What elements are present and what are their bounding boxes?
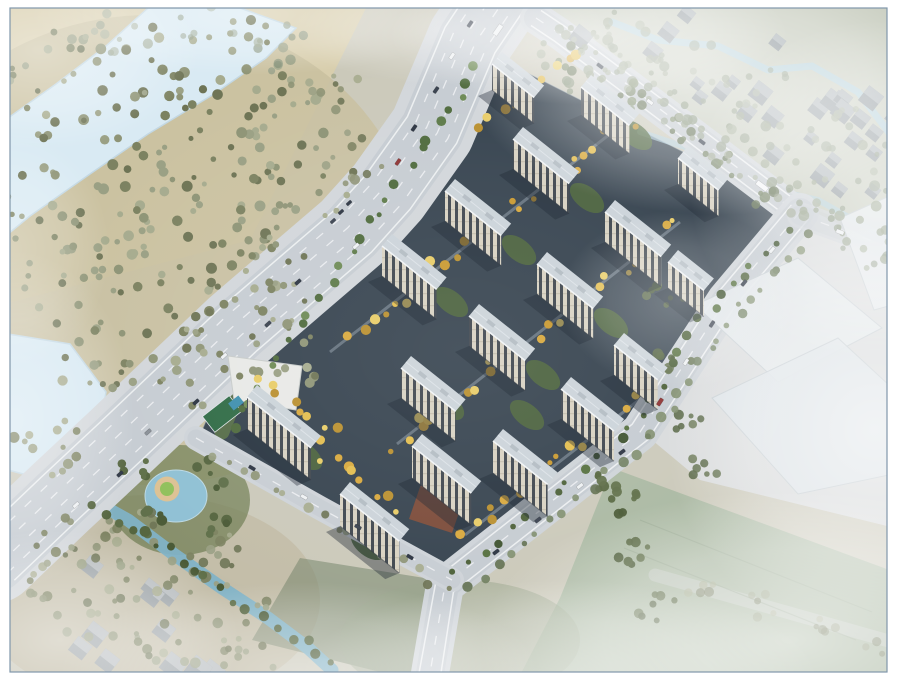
haze [0,0,903,685]
tree [212,89,223,100]
tree [199,85,207,93]
tree [215,75,225,85]
tree [107,159,118,170]
aerial-site-rendering [0,0,903,685]
rendering-page [0,0,903,685]
tree [132,142,141,151]
haze-patch [40,50,880,650]
tree [188,100,197,109]
tree [182,105,189,112]
scene-layers [0,0,903,685]
